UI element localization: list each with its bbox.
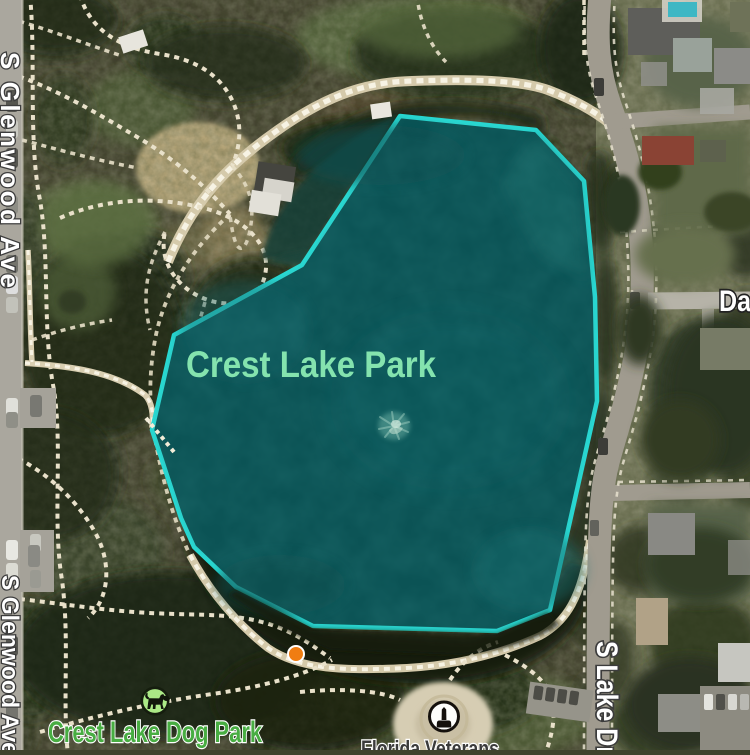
svg-text:Crest Lake Dog Park: Crest Lake Dog Park (48, 716, 262, 749)
svg-text:Da: Da (719, 285, 750, 318)
svg-text:S Glenwood Ave: S Glenwood Ave (0, 575, 23, 750)
svg-text:S Lake Dr: S Lake Dr (590, 641, 623, 750)
svg-text:Florida Veterans: Florida Veterans (361, 736, 499, 750)
svg-text:Crest Lake Park: Crest Lake Park (186, 344, 436, 385)
